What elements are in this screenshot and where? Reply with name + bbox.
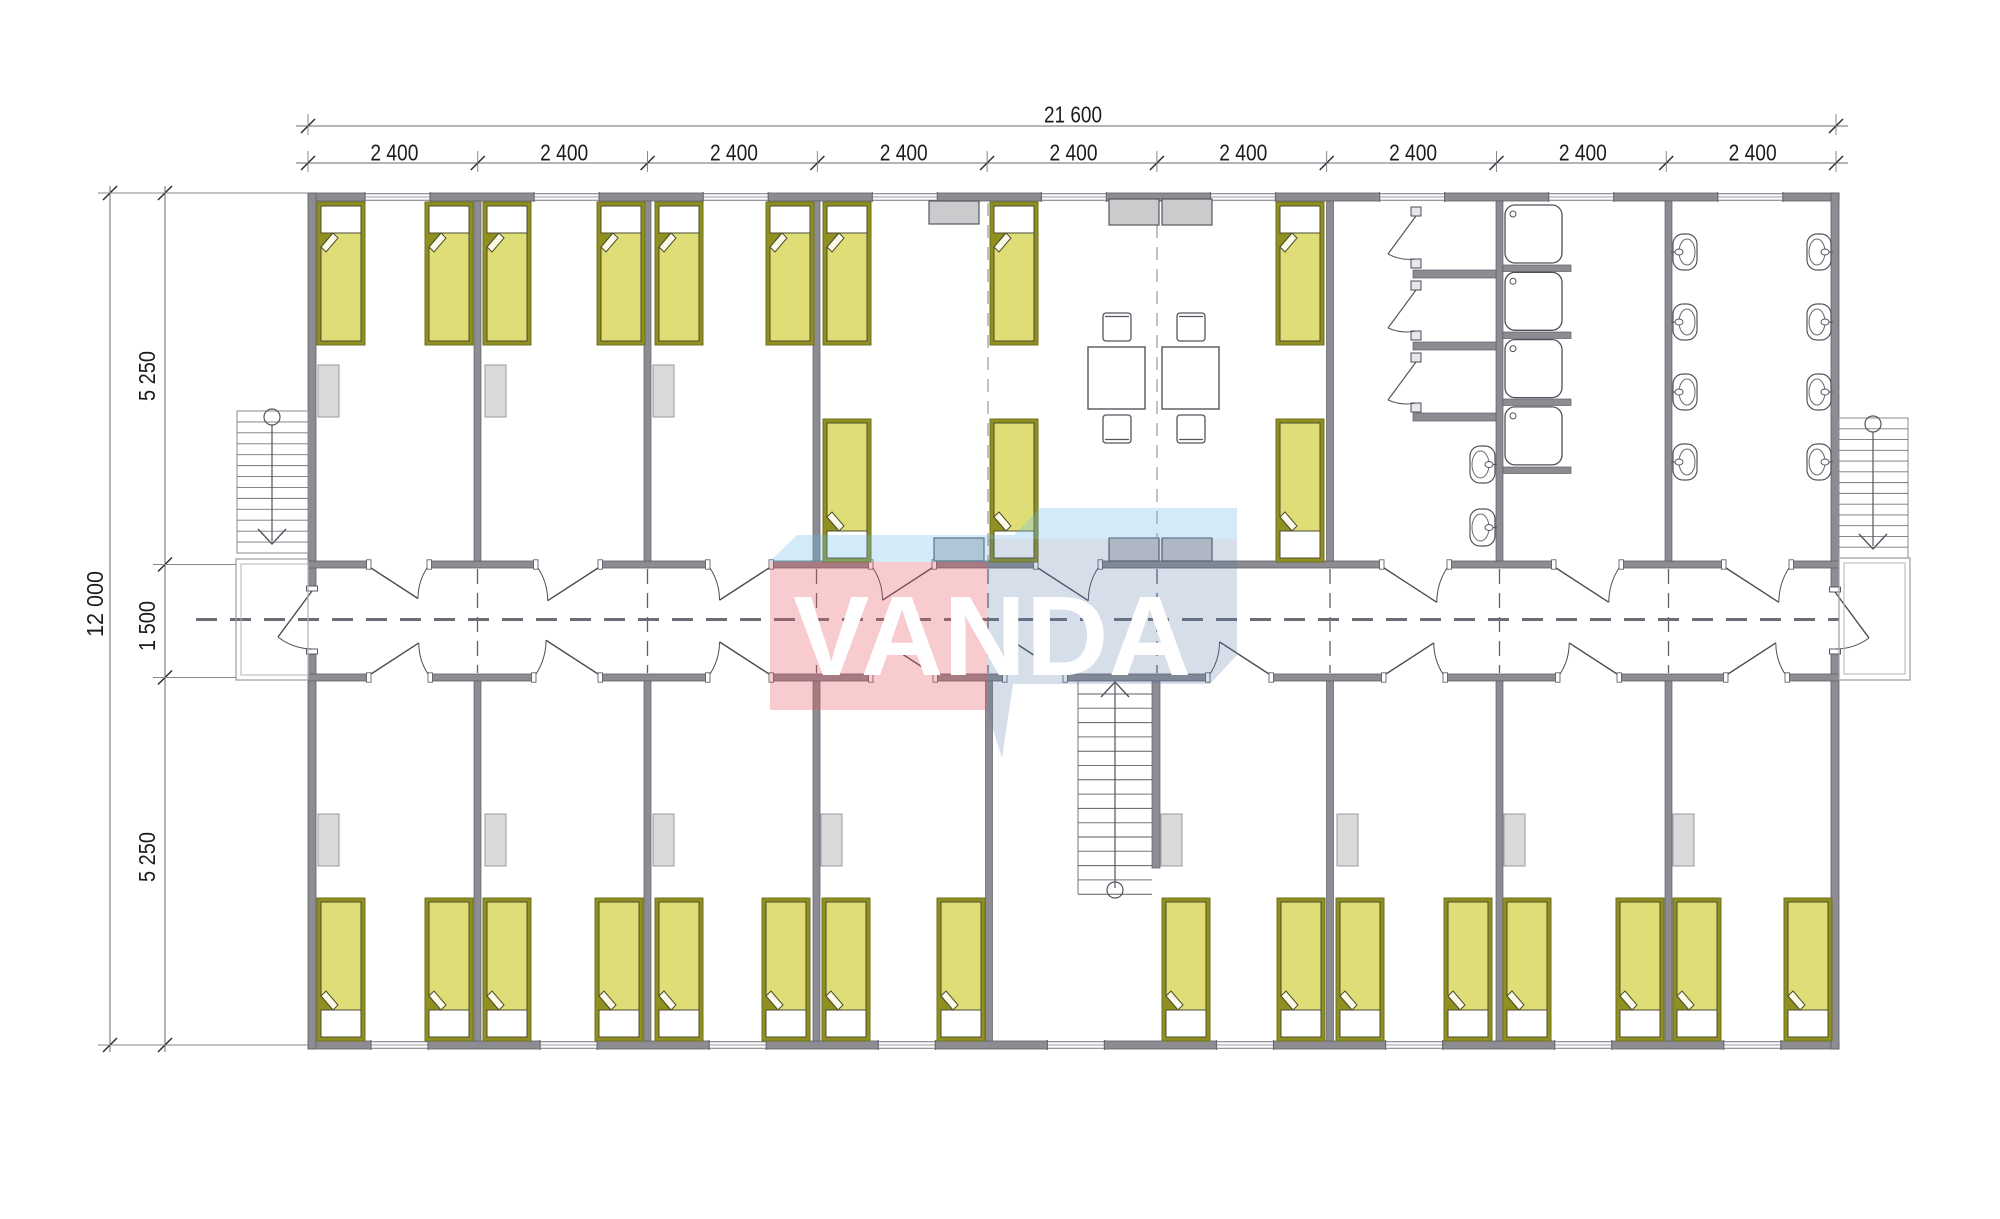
svg-text:2 400: 2 400 — [540, 140, 588, 166]
svg-text:VANDA: VANDA — [793, 573, 1191, 699]
svg-text:5 250: 5 250 — [134, 832, 160, 882]
svg-text:2 400: 2 400 — [1389, 140, 1437, 166]
svg-text:2 400: 2 400 — [1559, 140, 1607, 166]
svg-text:1 500: 1 500 — [134, 601, 160, 651]
svg-text:5 250: 5 250 — [134, 351, 160, 401]
svg-text:2 400: 2 400 — [1219, 140, 1267, 166]
svg-text:2 400: 2 400 — [710, 140, 758, 166]
svg-text:21 600: 21 600 — [1044, 102, 1102, 128]
svg-text:2 400: 2 400 — [1729, 140, 1777, 166]
svg-text:12 000: 12 000 — [82, 571, 108, 637]
svg-text:2 400: 2 400 — [1050, 140, 1098, 166]
svg-text:2 400: 2 400 — [880, 140, 928, 166]
svg-text:2 400: 2 400 — [370, 140, 418, 166]
